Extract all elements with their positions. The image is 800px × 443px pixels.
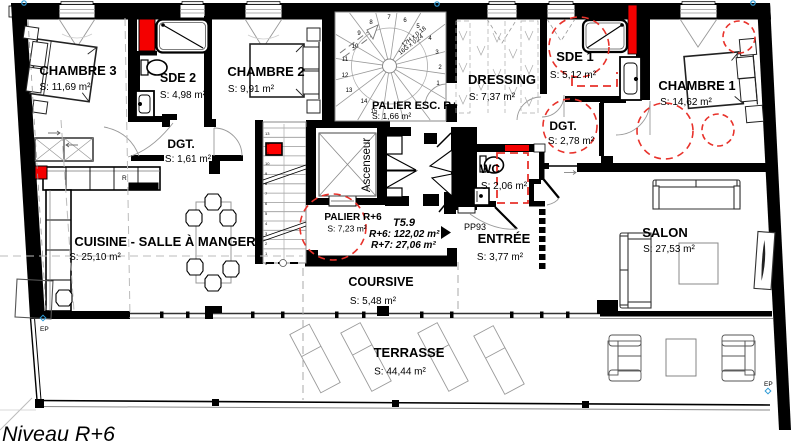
- svg-text:S: 2,06 m²: S: 2,06 m²: [481, 181, 528, 192]
- svg-text:CHAMBRE 2: CHAMBRE 2: [227, 64, 304, 79]
- svg-text:13: 13: [346, 88, 353, 94]
- svg-text:S: 14,62 m²: S: 14,62 m²: [660, 97, 712, 108]
- svg-text:S: 27,53 m²: S: 27,53 m²: [643, 244, 695, 255]
- svg-text:12: 12: [342, 73, 349, 79]
- svg-text:S: 4,98 m²: S: 4,98 m²: [160, 90, 207, 101]
- svg-text:DGT.: DGT.: [549, 119, 576, 133]
- svg-text:S: 1,66 m²: S: 1,66 m²: [372, 111, 411, 121]
- svg-text:14: 14: [361, 99, 368, 105]
- svg-text:SDE 1: SDE 1: [556, 49, 594, 64]
- svg-text:R+7: 27,06 m²: R+7: 27,06 m²: [371, 240, 436, 251]
- svg-text:S: 2,78 m²: S: 2,78 m²: [548, 136, 595, 147]
- svg-text:CHAMBRE 1: CHAMBRE 1: [658, 78, 735, 93]
- svg-text:10: 10: [265, 161, 270, 166]
- svg-text:12: 12: [265, 141, 270, 146]
- svg-text:R+6: 122,02 m²: R+6: 122,02 m²: [369, 229, 440, 240]
- svg-text:S: 44,44 m²: S: 44,44 m²: [374, 367, 426, 378]
- svg-text:EP: EP: [764, 381, 773, 388]
- svg-text:DRESSING: DRESSING: [468, 72, 536, 87]
- svg-text:T5.9: T5.9: [393, 217, 416, 229]
- svg-text:S: 25,10 m²: S: 25,10 m²: [69, 252, 121, 263]
- svg-text:PALIER R+6: PALIER R+6: [324, 212, 382, 223]
- svg-text:SDE 2: SDE 2: [160, 71, 196, 85]
- svg-text:S: 5,12 m²: S: 5,12 m²: [550, 70, 597, 81]
- svg-text:S: 7,23 m²: S: 7,23 m²: [327, 224, 366, 234]
- svg-text:SALON: SALON: [642, 225, 688, 240]
- svg-text:R: R: [122, 175, 127, 182]
- svg-text:S: 1,61 m²: S: 1,61 m²: [165, 154, 212, 165]
- svg-text:13: 13: [265, 131, 270, 136]
- svg-text:TERRASSE: TERRASSE: [374, 345, 445, 360]
- svg-text:WC: WC: [480, 162, 500, 176]
- svg-text:ENTRÉE: ENTRÉE: [478, 231, 531, 246]
- svg-text:CUISINE - SALLE À MANGER: CUISINE - SALLE À MANGER: [74, 234, 256, 249]
- svg-text:DGT.: DGT.: [167, 137, 194, 151]
- svg-text:PP93: PP93: [464, 222, 486, 232]
- svg-text:S: 7,37 m²: S: 7,37 m²: [469, 92, 516, 103]
- svg-text:COURSIVE: COURSIVE: [348, 275, 413, 289]
- svg-text:S: 9,91 m²: S: 9,91 m²: [228, 84, 275, 95]
- svg-text:Niveau R+6: Niveau R+6: [2, 422, 115, 443]
- svg-text:CHAMBRE 3: CHAMBRE 3: [39, 63, 116, 78]
- svg-text:S: 3,77 m²: S: 3,77 m²: [477, 252, 524, 263]
- svg-text:EP: EP: [40, 326, 49, 333]
- svg-text:11: 11: [342, 57, 349, 63]
- svg-text:S: 11,69 m²: S: 11,69 m²: [40, 82, 92, 93]
- svg-text:Ascenseur: Ascenseur: [361, 138, 373, 193]
- svg-text:S: 5,48 m²: S: 5,48 m²: [350, 296, 397, 307]
